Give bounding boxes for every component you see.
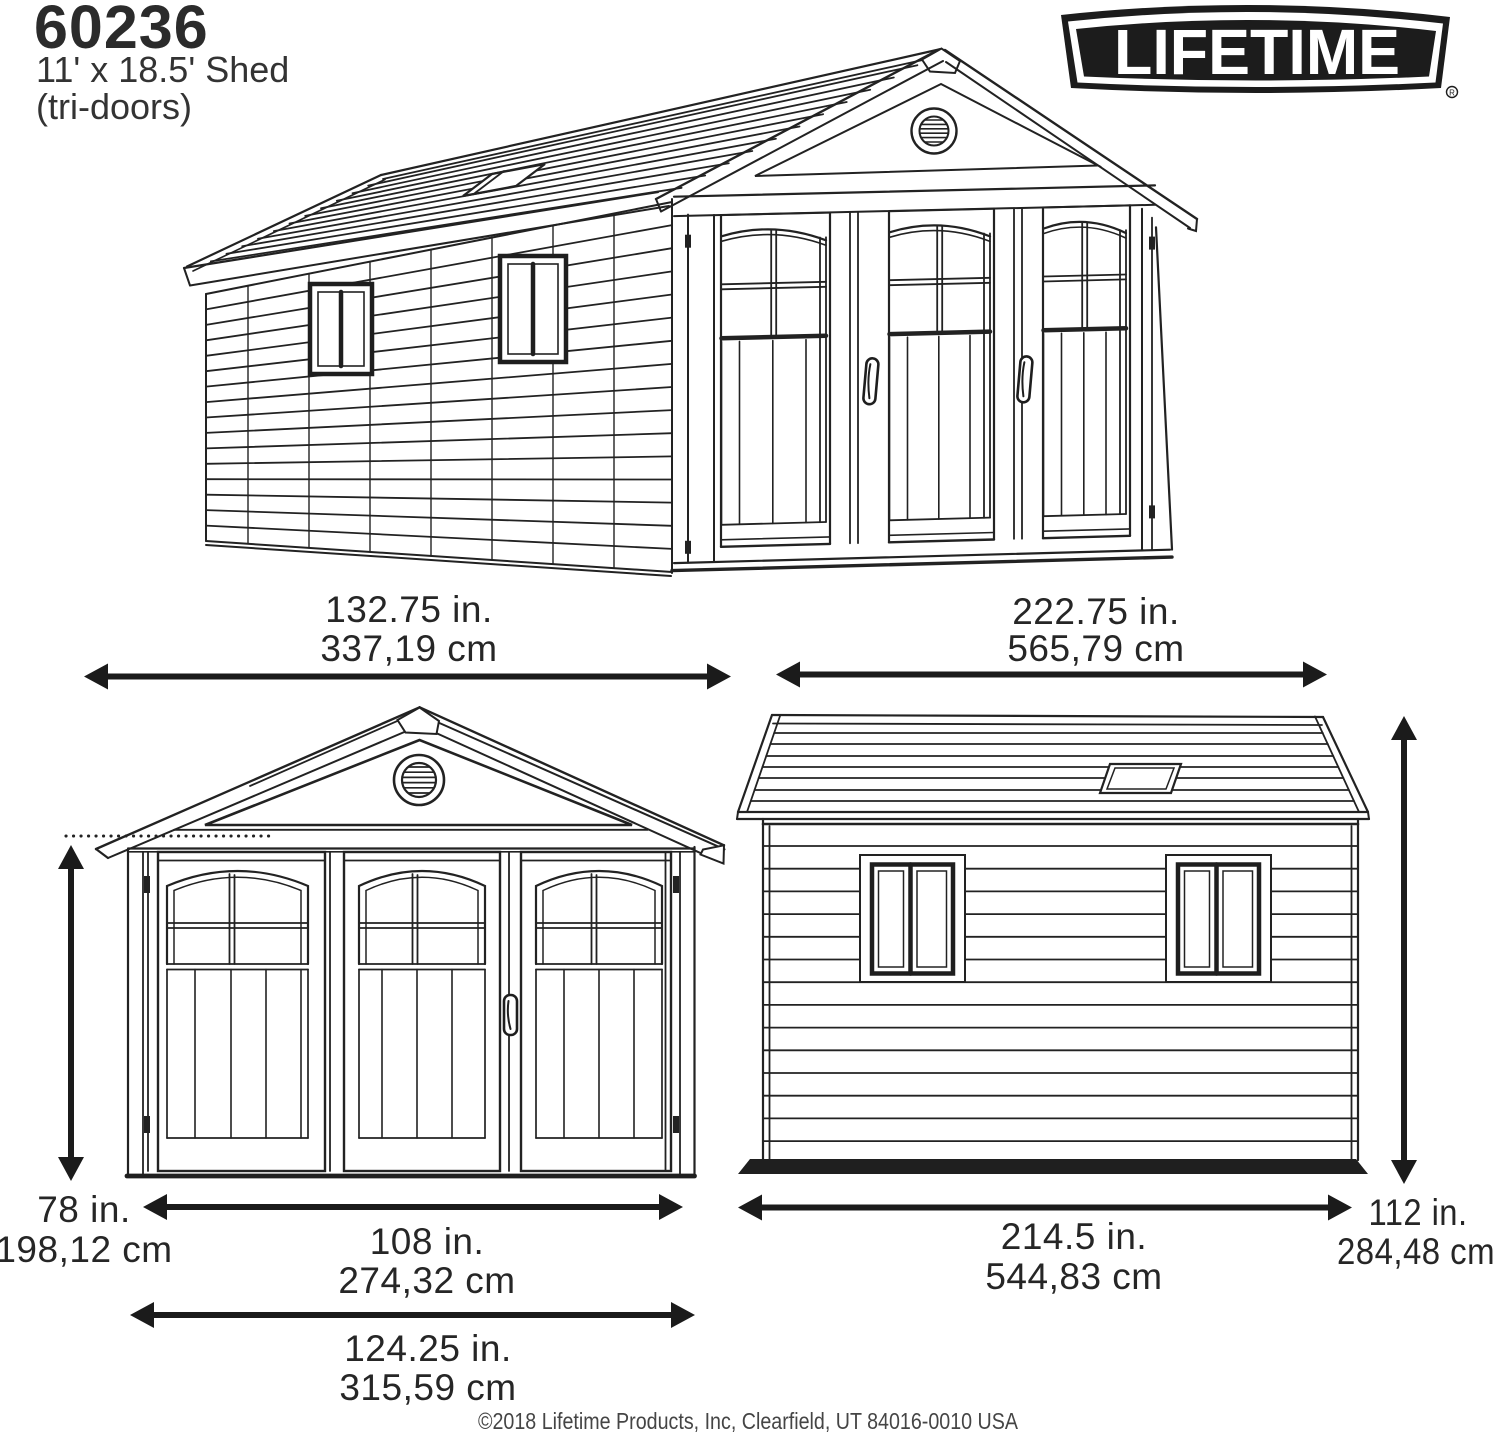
svg-text:565,79 cm: 565,79 cm bbox=[1007, 628, 1184, 669]
svg-text:LIFETIME: LIFETIME bbox=[1114, 16, 1400, 88]
svg-text:544,83 cm: 544,83 cm bbox=[985, 1256, 1162, 1297]
svg-text:78 in.: 78 in. bbox=[37, 1189, 131, 1230]
svg-text:R: R bbox=[1449, 89, 1455, 98]
svg-text:198,12 cm: 198,12 cm bbox=[0, 1229, 173, 1270]
svg-text:222.75 in.: 222.75 in. bbox=[1012, 591, 1180, 632]
svg-text:274,32 cm: 274,32 cm bbox=[338, 1260, 515, 1301]
svg-text:112 in.: 112 in. bbox=[1369, 1192, 1468, 1233]
svg-text:124.25 in.: 124.25 in. bbox=[344, 1328, 512, 1369]
svg-text:214.5 in.: 214.5 in. bbox=[1001, 1216, 1147, 1257]
svg-text:11' x 18.5' Shed: 11' x 18.5' Shed bbox=[36, 49, 289, 90]
svg-text:(tri-doors): (tri-doors) bbox=[36, 86, 192, 127]
svg-text:108 in.: 108 in. bbox=[370, 1221, 485, 1262]
svg-text:337,19 cm: 337,19 cm bbox=[320, 628, 497, 669]
svg-text:132.75 in.: 132.75 in. bbox=[325, 589, 493, 630]
svg-text:315,59 cm: 315,59 cm bbox=[339, 1367, 516, 1408]
svg-text:©2018 Lifetime Products, Inc,: ©2018 Lifetime Products, Inc, Clearfield… bbox=[478, 1408, 1019, 1434]
svg-text:284,48 cm: 284,48 cm bbox=[1337, 1231, 1495, 1272]
